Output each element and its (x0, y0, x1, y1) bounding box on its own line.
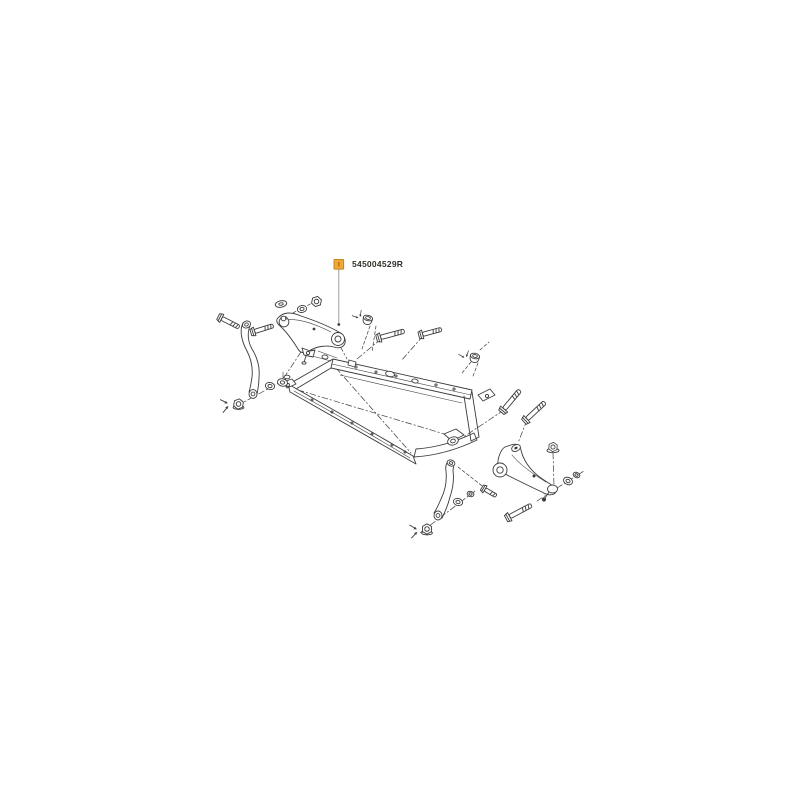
torque-arrows (410, 524, 418, 538)
parts-diagram-page: 545004529R (0, 0, 800, 800)
ball-stud (281, 316, 286, 321)
bolt (521, 399, 548, 425)
stabilizer-link-lower (434, 459, 456, 520)
bolt (498, 387, 524, 415)
bolt (504, 501, 534, 523)
subframe-crossmember (283, 351, 495, 464)
part-marker-glyph (338, 262, 340, 267)
upper-control-arm-part (277, 313, 345, 364)
bolt (375, 327, 405, 343)
washer (265, 382, 276, 391)
retaining-plate (275, 300, 288, 309)
washer (572, 471, 581, 479)
flange-nut (311, 295, 322, 307)
bolt (418, 325, 443, 340)
torque-arrows (220, 398, 229, 412)
washer (562, 476, 573, 486)
bolt (216, 313, 241, 332)
part-number-label[interactable]: 545004529R (352, 259, 403, 269)
washer (297, 305, 307, 314)
bolt (480, 484, 498, 499)
leader-dot (337, 323, 340, 326)
flange-nut (423, 524, 432, 534)
torque-arrows (352, 310, 364, 320)
parts-diagram: 545004529R (0, 0, 800, 800)
bolt (250, 321, 275, 336)
torque-arrows (459, 351, 471, 359)
washer (453, 497, 464, 506)
rear-mount-tab (478, 389, 495, 401)
bushing (362, 314, 373, 325)
